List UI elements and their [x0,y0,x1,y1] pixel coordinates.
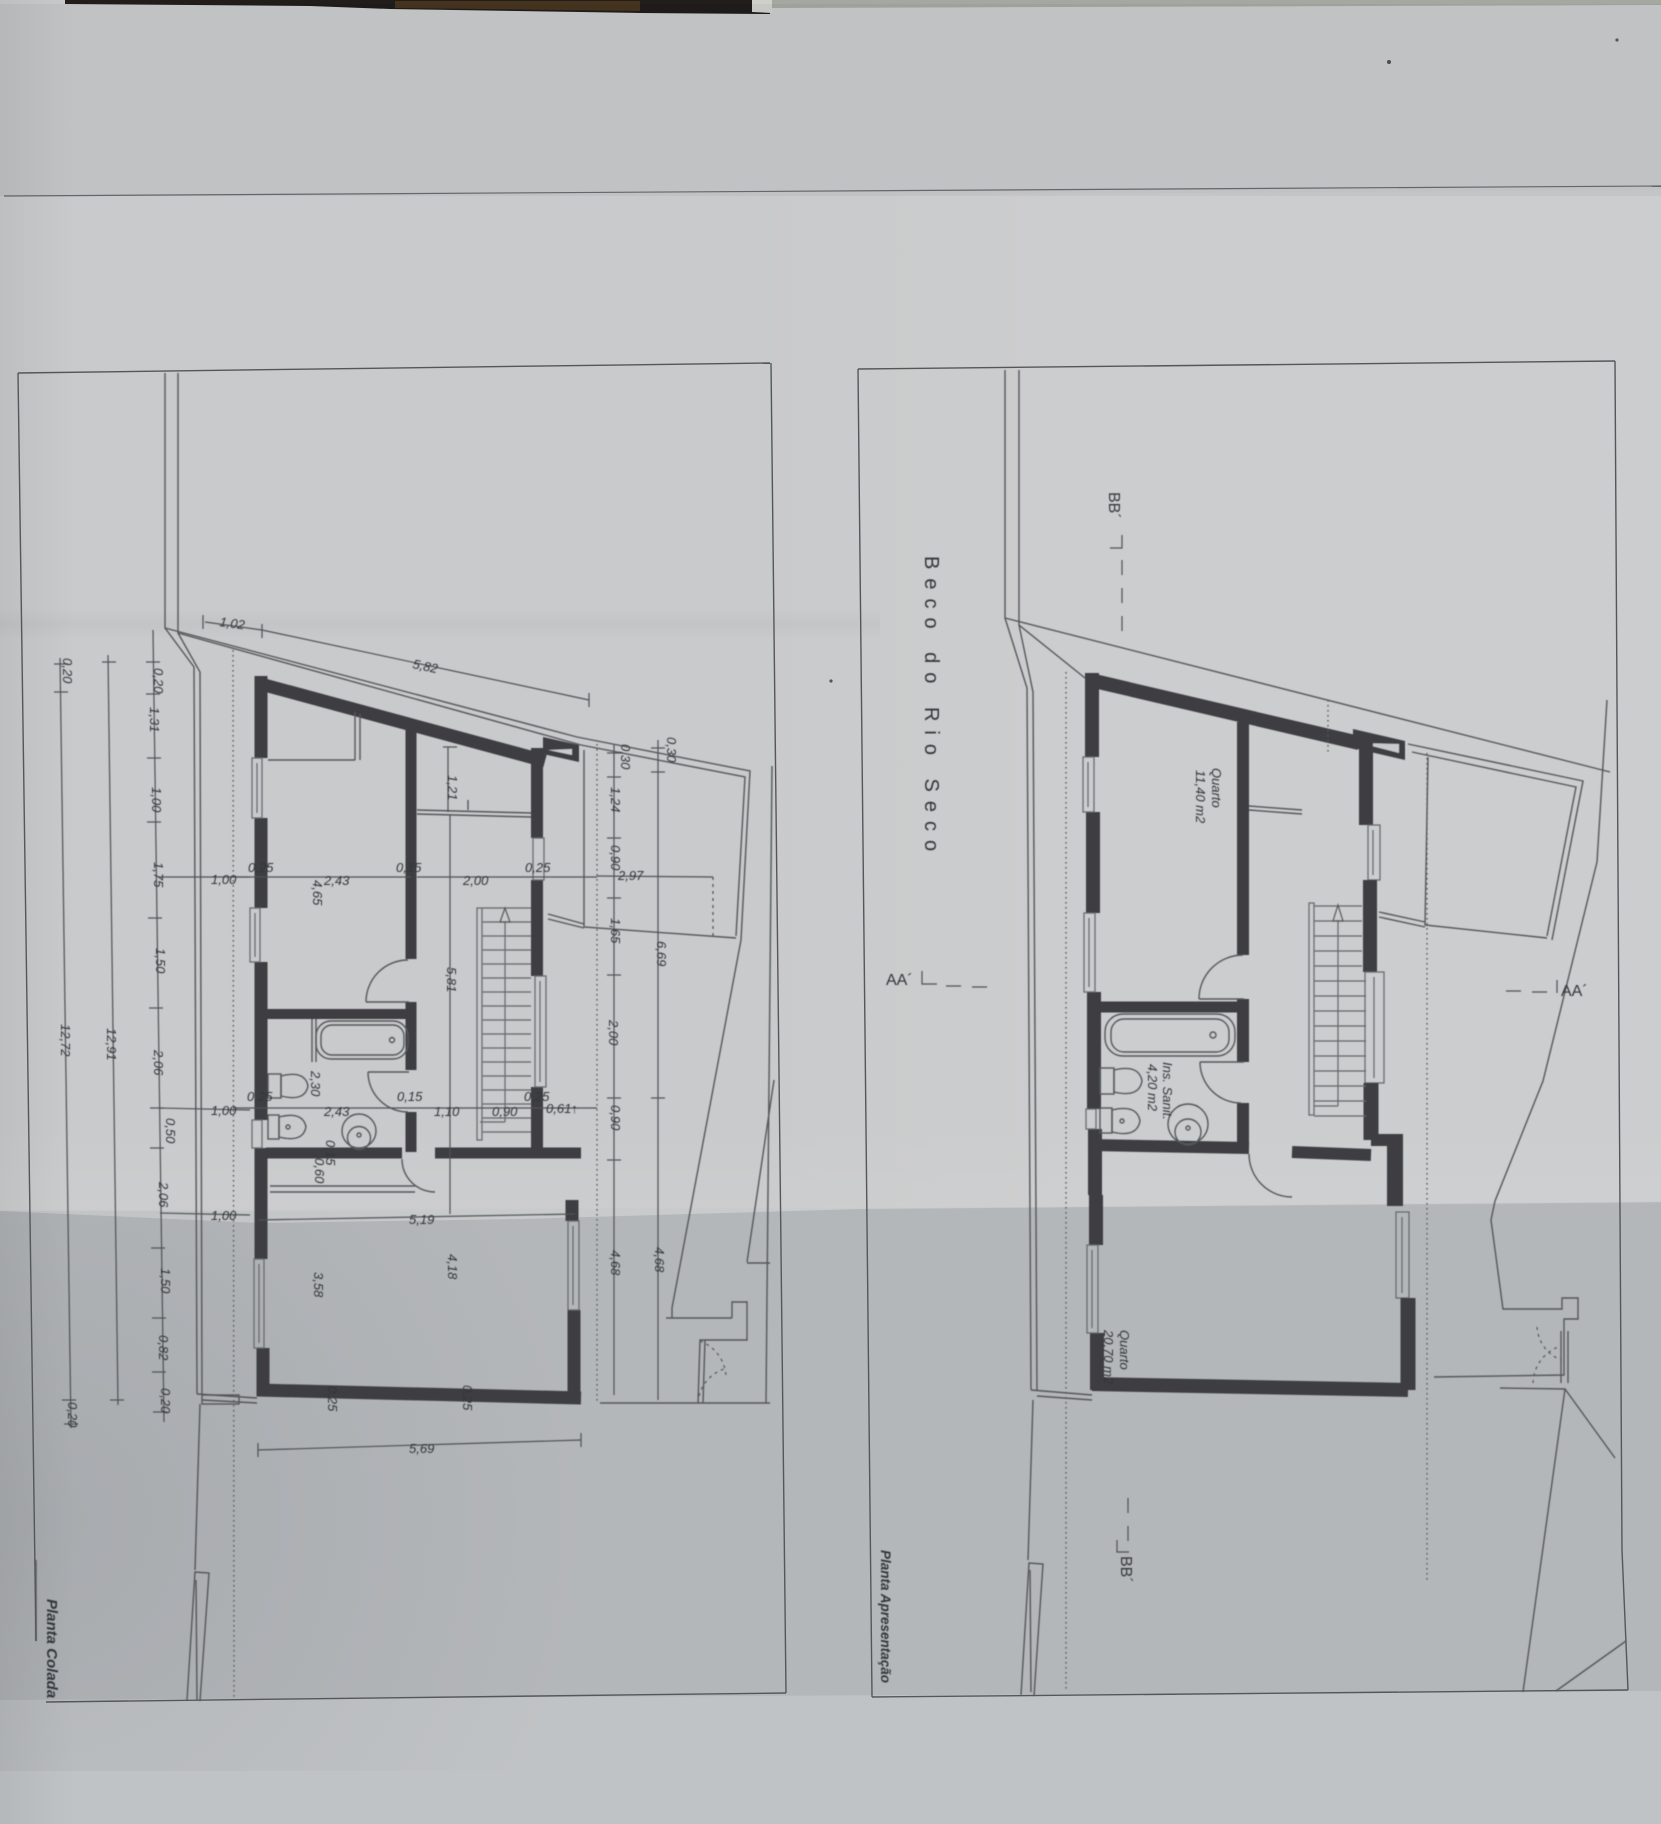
svg-text:1,50: 1,50 [153,948,168,974]
svg-text:4,68: 4,68 [608,1250,623,1276]
svg-text:0,60: 0,60 [312,1158,327,1184]
svg-text:0,25: 0,25 [247,1089,273,1104]
svg-text:1,31: 1,31 [147,707,162,732]
svg-text:2,43: 2,43 [323,1104,350,1119]
svg-text:1,24: 1,24 [608,787,623,812]
svg-text:2,00: 2,00 [462,873,489,888]
svg-text:4,68: 4,68 [652,1247,667,1273]
svg-text:0,90: 0,90 [608,1105,623,1131]
svg-text:Quarto: Quarto [1209,768,1224,808]
svg-text:1,10: 1,10 [434,1104,460,1119]
svg-text:12,72: 12,72 [58,1024,73,1057]
svg-text:0,20: 0,20 [158,1388,173,1414]
svg-text:0,25: 0,25 [525,860,551,875]
svg-text:20,70 m2: 20,70 m2 [1101,1329,1116,1385]
svg-text:12,91: 12,91 [104,1028,119,1061]
svg-text:0,20: 0,20 [65,1402,80,1428]
svg-text:0,25: 0,25 [325,1386,340,1412]
svg-text:0,15: 0,15 [396,860,422,875]
svg-text:1,00: 1,00 [149,787,164,813]
svg-text:0,15: 0,15 [397,1089,423,1104]
svg-text:BB´: BB´ [1117,1556,1134,1583]
svg-text:0,90: 0,90 [492,1104,518,1119]
svg-text:1,65: 1,65 [608,918,623,944]
svg-text:0,30: 0,30 [664,737,679,763]
svg-text:Beco do Rio Seco: Beco do Rio Seco [920,556,942,860]
svg-text:11,40 m2: 11,40 m2 [1193,770,1208,824]
svg-text:4,65: 4,65 [310,880,325,906]
svg-text:1,00: 1,00 [211,1208,237,1223]
svg-text:0,61↑: 0,61↑ [546,1101,578,1116]
svg-text:1,75: 1,75 [151,862,166,888]
svg-text:5,19: 5,19 [409,1212,434,1227]
svg-text:0,25: 0,25 [460,1385,475,1411]
svg-text:1,00: 1,00 [211,872,237,887]
svg-text:AA´: AA´ [886,972,913,989]
svg-text:2,06: 2,06 [156,1181,171,1208]
svg-text:1,21: 1,21 [445,775,460,800]
svg-text:Planta Colada: Planta Colada [43,1599,60,1698]
svg-text:4,18: 4,18 [445,1254,460,1280]
svg-text:1,00: 1,00 [211,1103,237,1118]
svg-text:0,20: 0,20 [151,668,166,694]
svg-text:2,06: 2,06 [151,1049,166,1076]
svg-text:2,00: 2,00 [606,1019,621,1046]
svg-text:Planta Apresentação: Planta Apresentação [878,1550,893,1683]
svg-text:0,50: 0,50 [163,1118,178,1144]
svg-text:2,43: 2,43 [323,873,350,888]
svg-text:2,30: 2,30 [308,1070,323,1097]
svg-text:0,20: 0,20 [60,658,75,684]
svg-text:4,20 m2: 4,20 m2 [1145,1064,1160,1112]
svg-text:Ins. Sanit.: Ins. Sanit. [1160,1062,1175,1120]
svg-text:AA´: AA´ [1561,983,1588,1000]
svg-text:0,30: 0,30 [618,744,633,770]
svg-text:1,50: 1,50 [158,1268,173,1294]
svg-text:3,58: 3,58 [311,1272,326,1298]
svg-text:6,69: 6,69 [654,941,669,966]
svg-text:0,25: 0,25 [248,860,274,875]
svg-text:5,81: 5,81 [444,967,459,992]
svg-text:Quarto: Quarto [1117,1330,1132,1370]
svg-text:0,82: 0,82 [156,1335,171,1361]
svg-text:BB´: BB´ [1105,492,1122,519]
svg-text:0,90: 0,90 [608,845,623,871]
svg-text:5,69: 5,69 [409,1441,434,1456]
